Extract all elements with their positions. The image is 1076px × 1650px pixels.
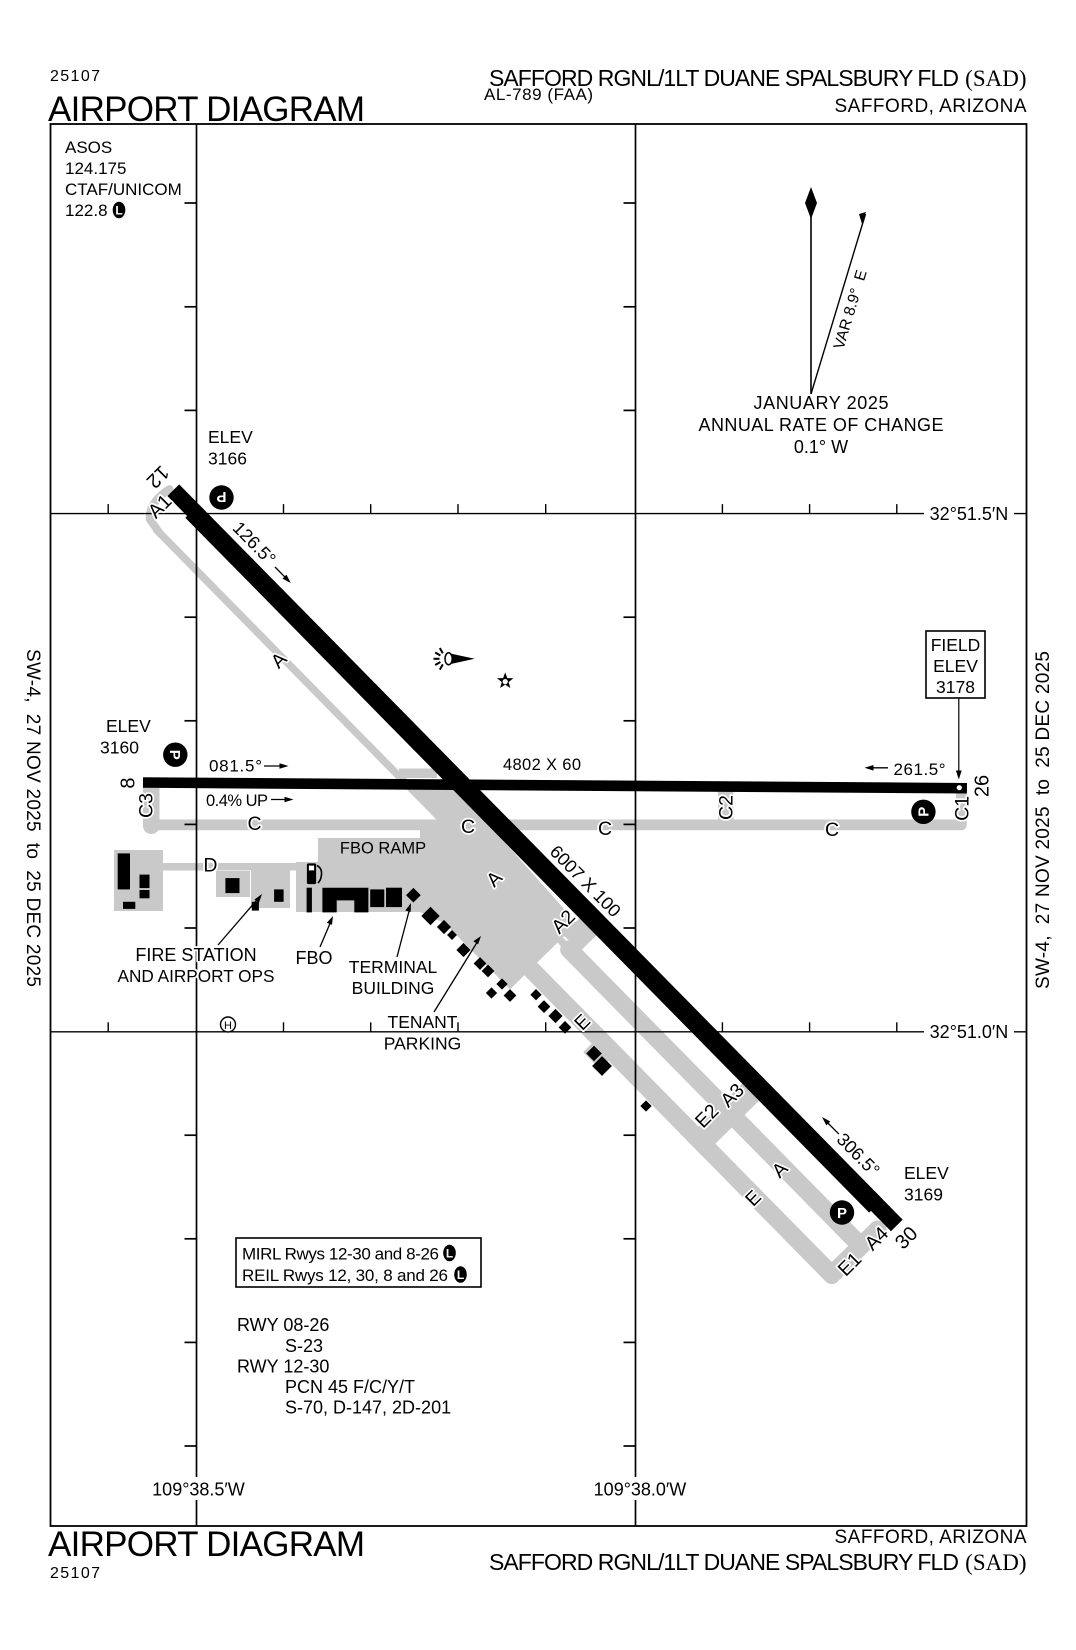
- svg-text:P: P: [916, 807, 933, 817]
- svg-text:REIL Rwys 12, 30, 8 and 26: REIL Rwys 12, 30, 8 and 26: [242, 1266, 448, 1285]
- svg-text:C2: C2: [716, 795, 738, 820]
- svg-text:SW-4, 27 NOV 2025 to 25 DEC: SW-4, 27 NOV 2025 to 25 DEC 2025: [1033, 651, 1054, 989]
- svg-text:109°38.5′W: 109°38.5′W: [152, 1480, 245, 1500]
- svg-text:ELEV: ELEV: [106, 716, 151, 736]
- svg-text:C: C: [825, 819, 839, 841]
- svg-text:TERMINAL: TERMINAL: [349, 957, 438, 977]
- svg-text:AND AIRPORT OPS: AND AIRPORT OPS: [118, 966, 275, 986]
- svg-text:122.8: 122.8: [65, 201, 108, 220]
- svg-text:JANUARY 2025: JANUARY 2025: [754, 393, 889, 413]
- svg-text:3178: 3178: [936, 677, 975, 697]
- svg-text:C: C: [247, 813, 261, 835]
- svg-text:ELEV: ELEV: [208, 427, 253, 447]
- svg-text:ELEV: ELEV: [904, 1163, 949, 1183]
- svg-text:SW-4, 27 NOV 2025 to 25 DEC: SW-4, 27 NOV 2025 to 25 DEC 2025: [22, 649, 43, 987]
- svg-text:CTAF/UNICOM: CTAF/UNICOM: [65, 180, 182, 199]
- svg-text:FBO RAMP: FBO RAMP: [340, 840, 426, 858]
- svg-text:L: L: [457, 1268, 464, 1282]
- svg-text:H: H: [224, 1020, 232, 1032]
- svg-text:32°51.0′N: 32°51.0′N: [930, 1022, 1009, 1042]
- svg-text:AIRPORT DIAGRAM: AIRPORT DIAGRAM: [48, 1525, 365, 1564]
- svg-text:8: 8: [118, 777, 140, 788]
- svg-text:S-23: S-23: [285, 1336, 323, 1356]
- svg-text:081.5°: 081.5°: [209, 757, 262, 776]
- svg-text:C: C: [598, 818, 612, 840]
- svg-text:ELEV: ELEV: [933, 656, 978, 676]
- svg-text:124.175: 124.175: [65, 159, 126, 178]
- svg-text:C3: C3: [136, 793, 158, 818]
- svg-text:SAFFORD, ARIZONA: SAFFORD, ARIZONA: [835, 1527, 1027, 1548]
- svg-text:S-70, D-147, 2D-201: S-70, D-147, 2D-201: [285, 1398, 451, 1418]
- svg-text:32°51.5′N: 32°51.5′N: [930, 504, 1009, 524]
- svg-text:FBO: FBO: [295, 948, 332, 968]
- svg-text:FIELD: FIELD: [931, 635, 981, 655]
- svg-text:AL-789 (FAA): AL-789 (FAA): [484, 85, 593, 104]
- svg-text:P: P: [837, 1205, 847, 1222]
- svg-text:ANNUAL RATE OF CHANGE: ANNUAL RATE OF CHANGE: [699, 415, 944, 435]
- svg-text:3160: 3160: [100, 738, 139, 758]
- svg-text:0.1° W: 0.1° W: [794, 437, 848, 457]
- svg-text:TENANT: TENANT: [388, 1012, 458, 1032]
- svg-text:25107: 25107: [50, 68, 100, 85]
- svg-text:3169: 3169: [904, 1185, 943, 1205]
- svg-text:(SAD): (SAD): [965, 66, 1026, 91]
- svg-text:PARKING: PARKING: [384, 1034, 461, 1054]
- svg-text:D: D: [203, 855, 217, 877]
- svg-text:(SAD): (SAD): [965, 1550, 1026, 1575]
- svg-text:261.5°: 261.5°: [894, 760, 946, 779]
- svg-text:4802 X 60: 4802 X 60: [503, 756, 581, 774]
- svg-text:RWY 08-26: RWY 08-26: [237, 1315, 329, 1335]
- svg-text:P: P: [166, 750, 183, 760]
- svg-text:FIRE STATION: FIRE STATION: [135, 945, 256, 965]
- svg-text:0.4% UP: 0.4% UP: [206, 792, 268, 810]
- svg-text:RWY 12-30: RWY 12-30: [237, 1357, 329, 1377]
- svg-text:3166: 3166: [208, 449, 247, 469]
- svg-text:PCN 45 F/C/Y/T: PCN 45 F/C/Y/T: [285, 1377, 415, 1397]
- svg-text:BUILDING: BUILDING: [352, 978, 435, 998]
- svg-text:P: P: [216, 488, 226, 505]
- svg-text:25107: 25107: [50, 1565, 100, 1582]
- svg-text:MIRL Rwys 12-30 and 8-26: MIRL Rwys 12-30 and 8-26: [242, 1245, 439, 1264]
- svg-text:C: C: [461, 816, 475, 838]
- svg-text:26: 26: [972, 775, 994, 797]
- svg-text:109°38.0′W: 109°38.0′W: [594, 1480, 687, 1500]
- svg-text:SAFFORD, ARIZONA: SAFFORD, ARIZONA: [835, 96, 1027, 117]
- svg-text:SAFFORD RGNL/1LT DUANE SPALSBU: SAFFORD RGNL/1LT DUANE SPALSBURY FLD: [489, 1549, 959, 1575]
- svg-text:ASOS: ASOS: [65, 138, 112, 157]
- svg-text:C1: C1: [952, 796, 974, 821]
- svg-text:L: L: [446, 1247, 453, 1261]
- svg-text:L: L: [115, 204, 122, 218]
